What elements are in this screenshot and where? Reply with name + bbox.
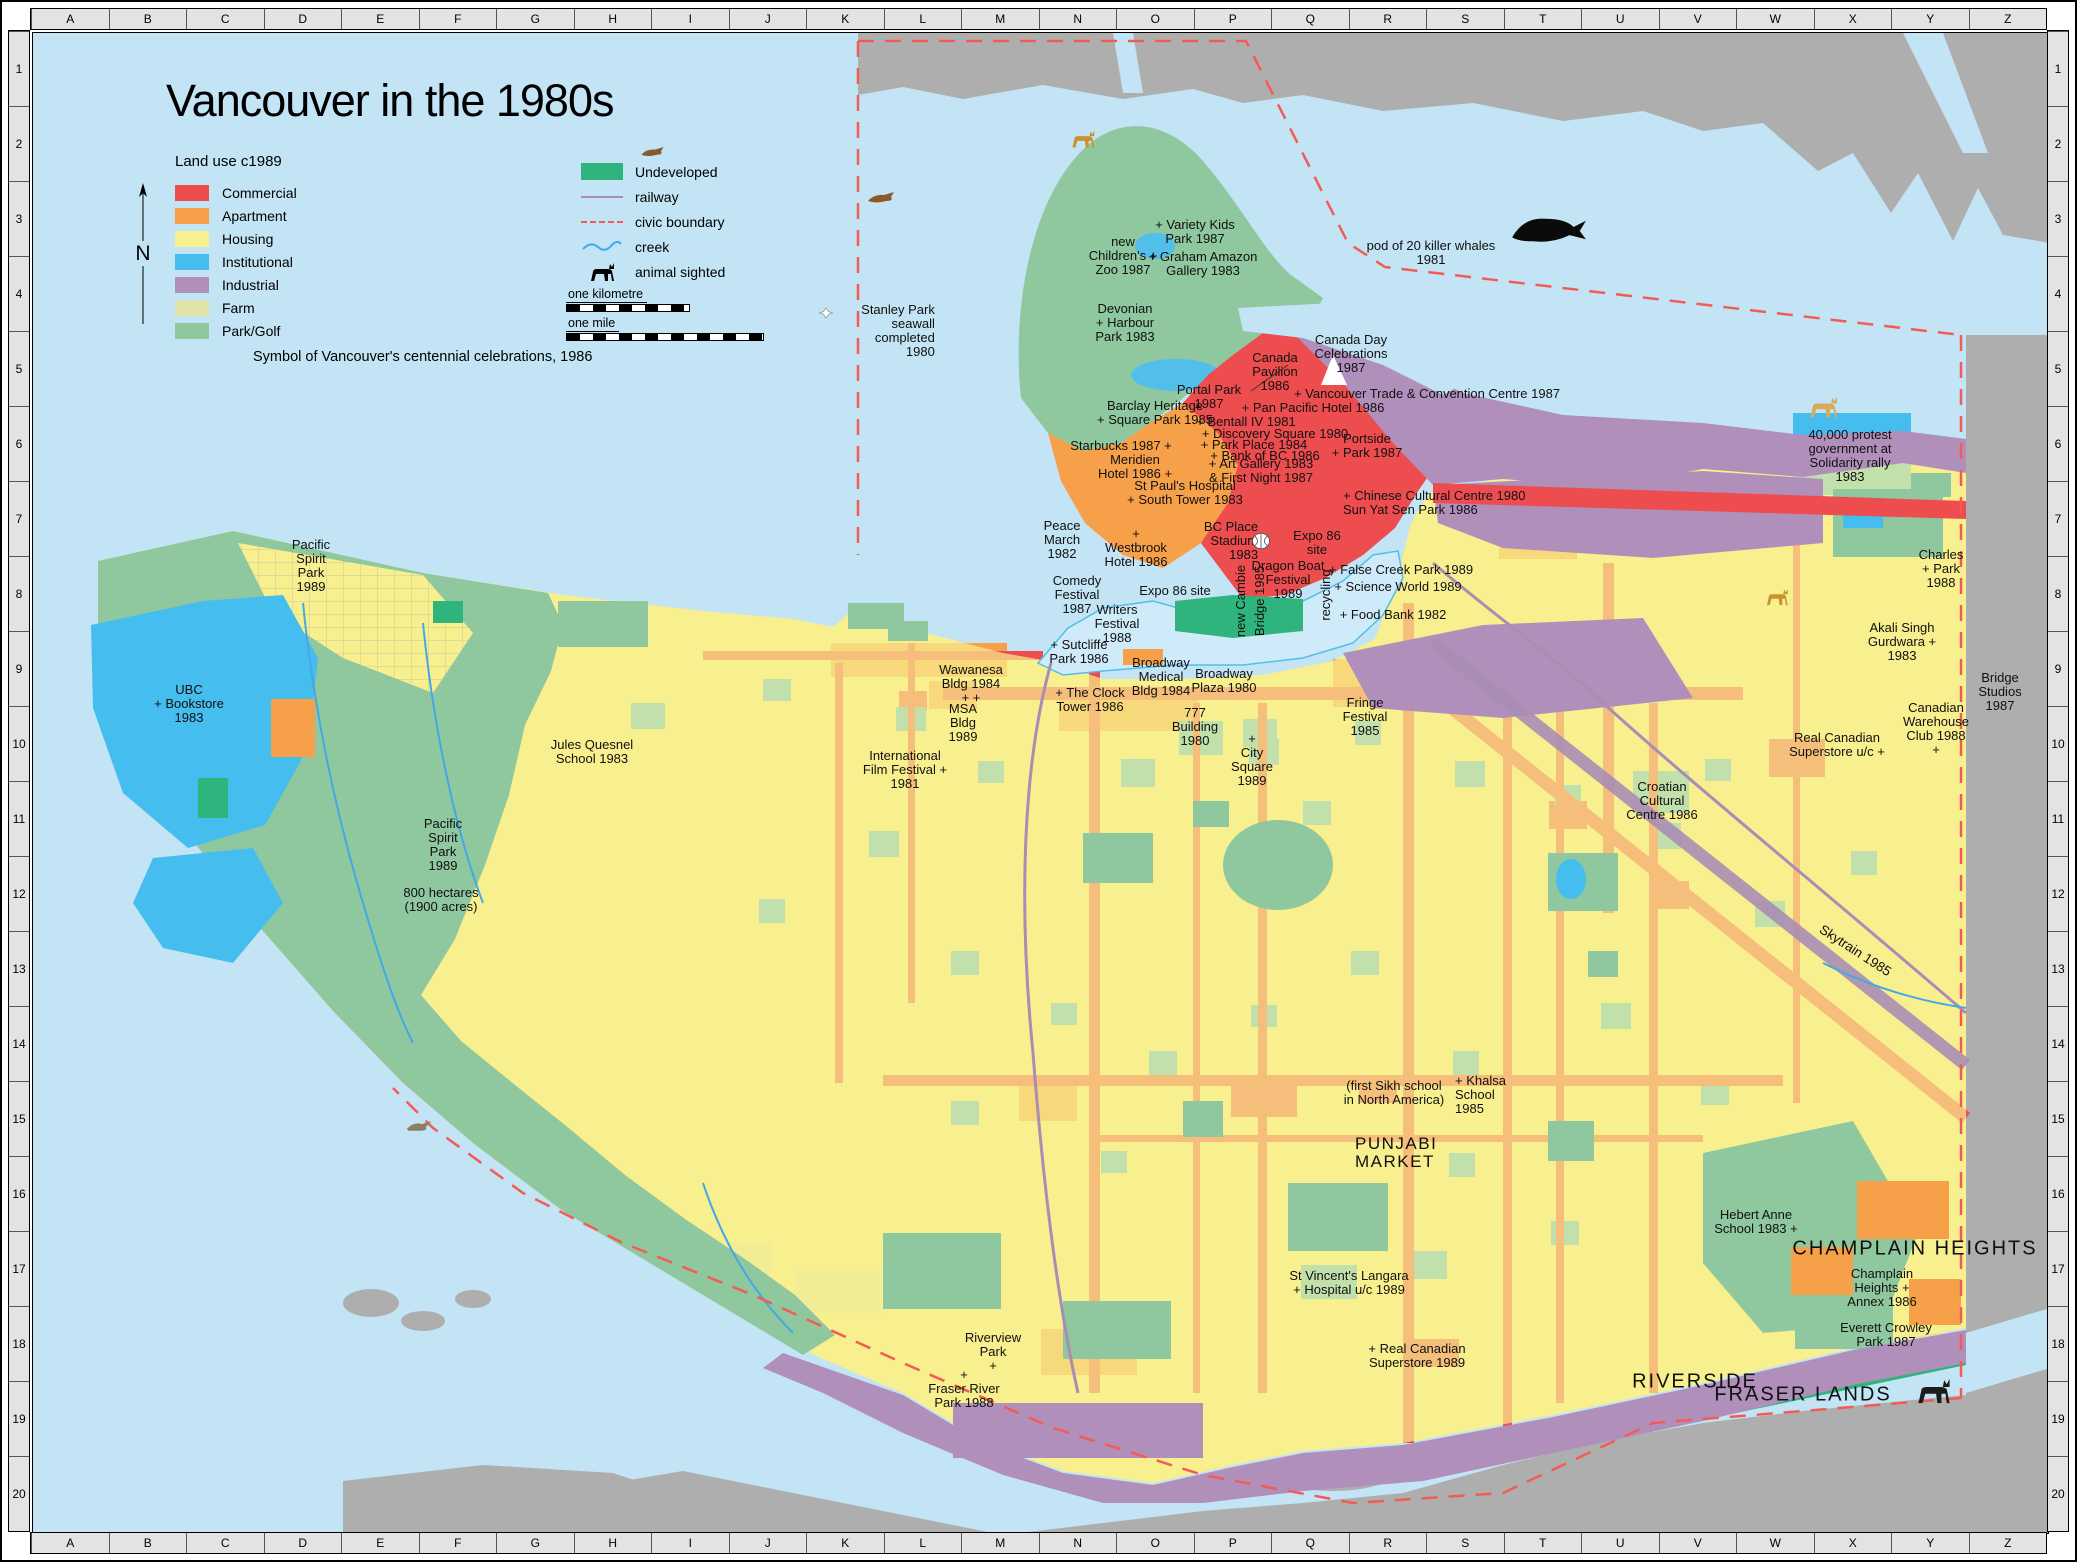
grid-number: 19 [9, 1381, 29, 1456]
grid-letter: T [1504, 9, 1582, 29]
grid-number: 5 [2048, 331, 2068, 406]
grid-letter: G [496, 1533, 574, 1553]
grid-number: 3 [9, 181, 29, 256]
grid-letter: S [1426, 9, 1504, 29]
grid-letter: N [1039, 9, 1117, 29]
grid-number: 6 [9, 406, 29, 481]
grid-letter: N [1039, 1533, 1117, 1553]
grid-letter: W [1736, 1533, 1814, 1553]
grid-letter: R [1349, 1533, 1427, 1553]
grid-letter: U [1581, 9, 1659, 29]
grid-letter: J [729, 9, 807, 29]
grid-number: 1 [9, 31, 29, 106]
map-sheet: ABCDEFGHIJKLMNOPQRSTUVWXYZ ABCDEFGHIJKLM… [0, 0, 2077, 1562]
grid-letter: F [419, 9, 497, 29]
grid-letter: Q [1271, 9, 1349, 29]
grid-number: 12 [9, 856, 29, 931]
grid-letter: L [884, 1533, 962, 1553]
grid-number: 1 [2048, 31, 2068, 106]
grid-number: 15 [9, 1081, 29, 1156]
grid-number: 11 [2048, 781, 2068, 856]
grid-letter: K [806, 9, 884, 29]
grid-letter: A [31, 1533, 109, 1553]
grid-number: 3 [2048, 181, 2068, 256]
grid-letter: X [1814, 9, 1892, 29]
grid-number: 7 [2048, 481, 2068, 556]
grid-number: 16 [2048, 1156, 2068, 1231]
grid-letter: R [1349, 9, 1427, 29]
grid-letter: A [31, 9, 109, 29]
grid-letter: K [806, 1533, 884, 1553]
grid-letter: O [1116, 9, 1194, 29]
grid-letter: B [109, 9, 187, 29]
grid-letter: D [264, 9, 342, 29]
grid-number: 17 [9, 1231, 29, 1306]
grid-letter: E [341, 9, 419, 29]
grid-letter: P [1194, 1533, 1272, 1553]
grid-letter: L [884, 9, 962, 29]
grid-number: 10 [2048, 706, 2068, 781]
trout-lake [1556, 859, 1586, 899]
grid-number: 17 [2048, 1231, 2068, 1306]
grid-letter: Y [1891, 1533, 1969, 1553]
map-canvas [32, 32, 2049, 1534]
grid-number: 20 [9, 1456, 29, 1531]
grid-number: 14 [9, 1006, 29, 1081]
grid-letter: E [341, 1533, 419, 1553]
grid-number: 7 [9, 481, 29, 556]
grid-number: 11 [9, 781, 29, 856]
grid-band-top: ABCDEFGHIJKLMNOPQRSTUVWXYZ [30, 8, 2047, 30]
grid-letter: Z [1969, 1533, 2047, 1553]
grid-number: 8 [9, 556, 29, 631]
grid-number: 4 [2048, 256, 2068, 331]
grid-number: 2 [9, 106, 29, 181]
grid-number: 6 [2048, 406, 2068, 481]
grid-letter: J [729, 1533, 807, 1553]
grid-number: 18 [2048, 1306, 2068, 1381]
grid-number: 12 [2048, 856, 2068, 931]
grid-letter: Q [1271, 1533, 1349, 1553]
grid-letter: V [1659, 9, 1737, 29]
expo-lands [1175, 595, 1303, 638]
grid-number: 15 [2048, 1081, 2068, 1156]
grid-number: 4 [9, 256, 29, 331]
grid-letter: M [961, 9, 1039, 29]
map-area: Vancouver in the 1980s Land use c1989 N … [32, 32, 2049, 1534]
grid-letter: H [574, 9, 652, 29]
granville-island [1123, 649, 1163, 665]
grid-letter: Y [1891, 9, 1969, 29]
grid-number: 18 [9, 1306, 29, 1381]
grid-letter: U [1581, 1533, 1659, 1553]
grid-band-left: 1234567891011121314151617181920 [8, 30, 30, 1532]
grid-number: 5 [9, 331, 29, 406]
grid-number: 8 [2048, 556, 2068, 631]
grid-letter: H [574, 1533, 652, 1553]
grid-letter: M [961, 1533, 1039, 1553]
grid-band-bottom: ABCDEFGHIJKLMNOPQRSTUVWXYZ [30, 1532, 2047, 1554]
grid-number: 2 [2048, 106, 2068, 181]
grid-number: 10 [9, 706, 29, 781]
grid-band-right: 1234567891011121314151617181920 [2047, 30, 2069, 1532]
grid-letter: O [1116, 1533, 1194, 1553]
grid-number: 14 [2048, 1006, 2068, 1081]
grid-letter: D [264, 1533, 342, 1553]
grid-letter: T [1504, 1533, 1582, 1553]
grid-letter: V [1659, 1533, 1737, 1553]
grid-letter: G [496, 9, 574, 29]
grid-number: 20 [2048, 1456, 2068, 1531]
beaver-lake [1135, 233, 1175, 259]
grid-letter: F [419, 1533, 497, 1553]
grid-letter: I [651, 9, 729, 29]
grid-letter: P [1194, 9, 1272, 29]
grid-number: 9 [2048, 631, 2068, 706]
grid-letter: C [186, 9, 264, 29]
grid-letter: W [1736, 9, 1814, 29]
grid-number: 13 [2048, 931, 2068, 1006]
grid-letter: B [109, 1533, 187, 1553]
grid-number: 19 [2048, 1381, 2068, 1456]
grid-number: 13 [9, 931, 29, 1006]
grid-letter: I [651, 1533, 729, 1553]
grid-letter: S [1426, 1533, 1504, 1553]
grid-number: 9 [9, 631, 29, 706]
grid-letter: X [1814, 1533, 1892, 1553]
grid-letter: Z [1969, 9, 2047, 29]
grid-letter: C [186, 1533, 264, 1553]
grid-number: 16 [9, 1156, 29, 1231]
